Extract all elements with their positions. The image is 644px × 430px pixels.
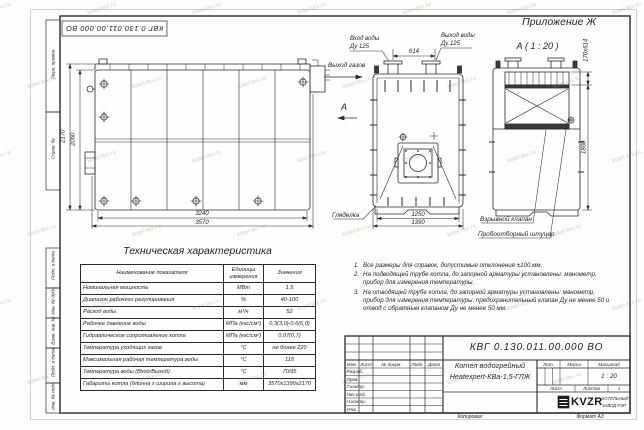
spec-cell: Температура воды (Вход/Выход) <box>81 367 224 379</box>
spec-cell: 0,3(3,0)-0,6(6,0) <box>264 319 316 331</box>
front-view-lines <box>370 61 466 214</box>
water-out-label: Выход воды <box>441 33 475 40</box>
row-razrab: Разраб. <box>347 369 364 374</box>
dim-3240: 3240 <box>182 211 222 218</box>
spec-cell: 40-100 <box>264 295 316 307</box>
spec-cell: 3570х1390х2170 <box>264 379 316 391</box>
water-in-dn: Ду 125 <box>350 44 369 51</box>
spec-cell: Номинальная мощность <box>81 283 224 295</box>
spec-table-title: Техническая характеристика <box>80 246 315 258</box>
sight-glass-label: Гляделка <box>332 212 359 219</box>
table-row: Диапазон рабочего регулирования%40-100 <box>81 295 316 307</box>
spec-cell: Рабочее давление воды <box>81 319 224 331</box>
spec-header-unit: Единицы измерения <box>224 265 264 283</box>
product-name-line2: Heatexpert-КВа-1,5-ГЛЖ <box>443 373 537 381</box>
dim-614: 614 <box>400 49 428 56</box>
spec-cell: 0,07(0,7) <box>264 331 316 343</box>
spec-cell: мм <box>224 379 264 391</box>
sheets-value: 1 <box>608 386 630 391</box>
kvzr-logo: KVZR <box>571 396 603 408</box>
col-data: Дата <box>425 362 443 367</box>
rear-view-title: А ( 1 : 20 ) <box>500 42 575 52</box>
col-list: Лист <box>359 362 373 367</box>
scale-label: Масштаб <box>588 362 630 367</box>
spec-cell: МПа (кгс/см²) <box>224 331 264 343</box>
spec-cell: Расход воды <box>81 307 224 319</box>
spec-cell: % <box>224 295 264 307</box>
gas-outlet-label: Выход газов <box>328 62 365 69</box>
spec-header-row: Наименование показателя Единицы измерени… <box>81 265 316 283</box>
spec-cell: 1,5 <box>264 283 316 295</box>
spec-cell: °С <box>224 367 264 379</box>
note-number: 1. <box>352 262 363 270</box>
copied-label: Копировал <box>440 415 500 421</box>
margin-field-sprav-no: Справ. № <box>50 104 55 194</box>
scale-value: 1 : 20 <box>588 373 630 380</box>
table-row: Рабочее давление водыМПа (кгс/см²)0,3(3,… <box>81 319 316 331</box>
dim-170x614: 170х614 <box>584 33 591 67</box>
note-item: 1.Все размеры для справок, допустимые от… <box>352 262 610 270</box>
table-row: Температура воды (Вход/Выход)°С70/95 <box>81 367 316 379</box>
spec-cell: Диапазон рабочего регулирования <box>81 295 224 307</box>
org-name-line2: ЗАВОД РЭП <box>602 404 626 409</box>
explosion-valve-label: Взрывной клапан <box>480 216 532 223</box>
note-number: 2. <box>352 271 363 287</box>
dim-3570: 3570 <box>182 220 222 227</box>
notes-list: 1.Все размеры для справок, допустимые от… <box>352 262 610 314</box>
lit-label: Лит. <box>537 362 560 367</box>
note-text: Все размеры для справок, допустимые откл… <box>363 262 610 270</box>
dim-1860: 1860 <box>582 130 589 164</box>
note-text: На отводящей трубе котла, до запорной ар… <box>363 289 610 314</box>
titleblock-doc-number: КВГ 0.130.011.00.000 ВО <box>443 336 630 360</box>
row-nkontr: Н.контр. <box>347 399 366 404</box>
spec-header-value: Значения <box>264 265 316 283</box>
org-name-line1: КОТЕЛЬНЫЙ <box>602 397 628 402</box>
spec-cell: 70/95 <box>264 367 316 379</box>
corner-doc-number: КВГ 0.130.011.00.000 ВО <box>62 21 167 36</box>
dim-1390: 1390 <box>398 220 438 227</box>
product-name-line1: Котел водогрейный <box>443 362 537 370</box>
water-out-dn: Ду 125 <box>441 41 460 48</box>
spec-table: Наименование показателя Единицы измерени… <box>80 264 316 391</box>
note-item: 2.На подводящей трубе котла, до запорной… <box>352 271 610 287</box>
mass-label: Масса <box>560 362 588 367</box>
row-tkontr: Т.контр. <box>347 384 366 389</box>
spec-header-name: Наименование показателя <box>81 265 224 283</box>
water-in-label: Вход воды <box>350 36 379 43</box>
spec-cell: МВт <box>224 283 264 295</box>
appendix-label: Приложение Ж <box>470 17 596 29</box>
side-view-lines <box>85 59 330 210</box>
note-number: 3. <box>352 289 363 314</box>
col-podp: Подп. <box>410 362 425 367</box>
spec-cell: Максимальная рабочая температура воды <box>81 355 224 367</box>
sheets-label: Листов <box>575 386 608 391</box>
spec-cell: Габариты котла (длинна х ширина х высота… <box>81 379 224 391</box>
spec-cell: 115 <box>264 355 316 367</box>
dimension-lines <box>66 48 592 238</box>
col-izm: Изм. <box>345 362 359 367</box>
table-row: Габариты котла (длинна х ширина х высота… <box>81 379 316 391</box>
sampling-fitting-label: Пробоотборный штуцер <box>478 231 554 238</box>
spec-cell: °С <box>224 355 264 367</box>
rear-view-lines <box>489 58 584 216</box>
view-direction-label: А <box>341 103 347 113</box>
row-utv: Утв. <box>347 407 357 412</box>
row-nachotd: Нач.отд. <box>347 392 366 397</box>
table-row: Гидравлическое сопротивление котлаМПа (к… <box>81 331 316 343</box>
spec-cell: Гидравлическое сопротивление котла <box>81 331 224 343</box>
margin-field-inv-podl: Инв. № подл. <box>50 351 55 430</box>
dim-2060: 2060 <box>71 124 78 154</box>
dim-2170: 2170 <box>61 121 68 151</box>
margin-field-perv-primen: Перв. примен. <box>50 19 55 109</box>
spec-cell: МПа (кгс/см²) <box>224 319 264 331</box>
sheet-label: Лист <box>537 386 575 391</box>
note-text: На подводящей трубе котла, до запорной а… <box>363 271 610 287</box>
spec-cell: °С <box>224 343 264 355</box>
note-item: 3.На отводящей трубе котла, до запорной … <box>352 289 610 314</box>
dim-1250: 1250 <box>398 212 438 219</box>
table-row: Температура уходящих газов°Сне более 220 <box>81 343 316 355</box>
format-label: Формат А3 <box>555 415 625 421</box>
table-row: Расход водым³/ч52 <box>81 307 316 319</box>
row-prov: Пров. <box>347 377 359 382</box>
spec-cell: Температура уходящих газов <box>81 343 224 355</box>
spec-cell: м³/ч <box>224 307 264 319</box>
spec-cell: 52 <box>264 307 316 319</box>
table-row: Номинальная мощностьМВт1,5 <box>81 283 316 295</box>
col-dokum: № докум. <box>373 362 410 367</box>
table-row: Максимальная рабочая температура воды°С1… <box>81 355 316 367</box>
drawing-sheet: КВГ 0.130.011.00.000 ВО Приложение Ж Вых… <box>0 0 644 430</box>
spec-cell: не более 220 <box>264 343 316 355</box>
